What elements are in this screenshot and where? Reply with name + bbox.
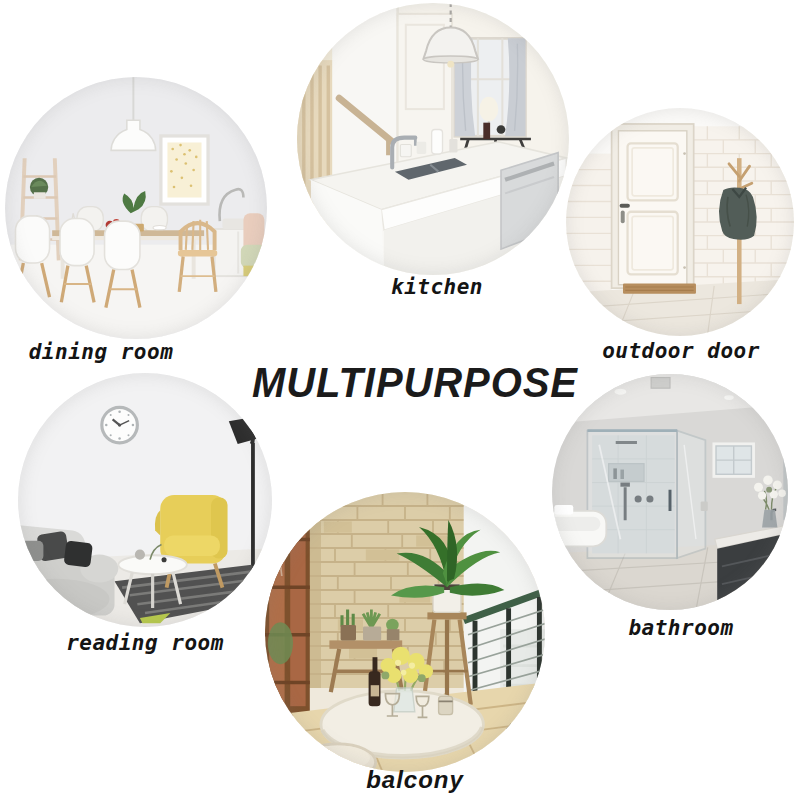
- balcony-photo: [265, 492, 545, 772]
- reading-room-scene: [18, 373, 272, 627]
- outdoor-door-label: outdoor door: [571, 339, 791, 363]
- bathroom-scene: [552, 374, 788, 610]
- ceiling-vent: [651, 378, 670, 389]
- window: [712, 442, 754, 477]
- wall-clock-icon: [102, 407, 138, 443]
- bathtub: [552, 505, 606, 546]
- kitchen-label: kitchen: [327, 275, 547, 299]
- multipurpose-collage: dining room kitchen outdoor door reading…: [0, 0, 800, 800]
- candle-jar: [439, 696, 453, 714]
- kitchen-photo: [297, 3, 569, 275]
- outdoor-door-photo: [566, 108, 794, 336]
- wood-window: [265, 492, 310, 716]
- doormat: [623, 284, 696, 294]
- dishwasher: [501, 153, 558, 250]
- dining-room-photo: [5, 77, 267, 339]
- balcony-label: balcony: [305, 766, 525, 794]
- outdoor-door-scene: [566, 108, 794, 336]
- jacket: [719, 188, 757, 240]
- accent-chair: [241, 213, 267, 276]
- wall-art: [161, 136, 208, 204]
- page-title: MULTIPURPOSE: [229, 358, 601, 407]
- reading-room-label: reading room: [35, 631, 255, 655]
- wine-bottle-silhouette: [483, 123, 490, 139]
- balcony-scene: [265, 492, 545, 772]
- wall-outlet: [701, 501, 708, 510]
- bathroom-photo: [552, 374, 788, 610]
- kitchen-scene: [297, 3, 569, 275]
- dining-room-label: dining room: [0, 340, 211, 364]
- dining-room-scene: [5, 77, 267, 339]
- reading-room-photo: [18, 373, 272, 627]
- bathroom-label: bathroom: [571, 616, 791, 640]
